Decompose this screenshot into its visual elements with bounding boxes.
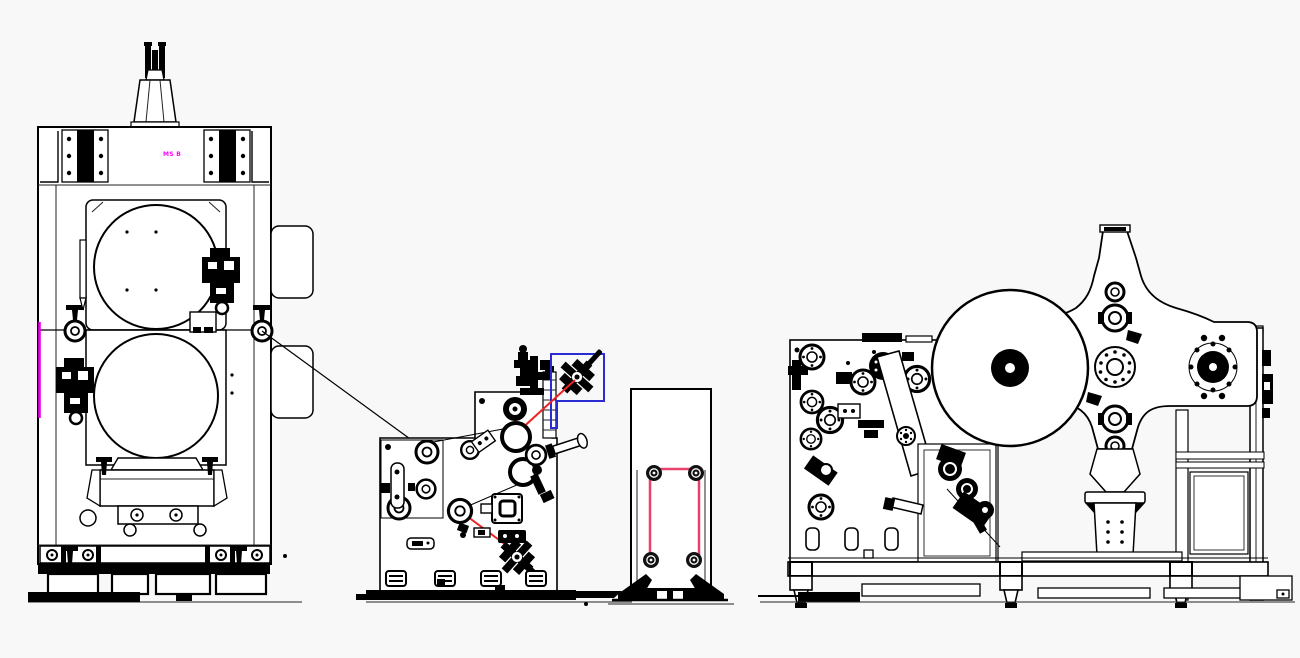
dark-roller xyxy=(503,397,527,421)
stand-roller-tr xyxy=(688,465,704,481)
side-box-lower xyxy=(271,346,313,418)
guide-roller-a xyxy=(416,441,438,463)
edge-mark xyxy=(38,322,41,418)
winder-roller-1 xyxy=(800,345,824,369)
guide-roller-b xyxy=(417,480,436,499)
mount-pad xyxy=(526,571,546,586)
press-machine: MS B xyxy=(28,42,313,602)
side-box-upper xyxy=(271,226,313,298)
stand-roller-bl xyxy=(643,552,659,568)
winder-roller-2 xyxy=(801,391,823,413)
winder-roller-5 xyxy=(809,495,833,519)
press-base xyxy=(28,546,287,602)
press-label: MS B xyxy=(163,151,181,158)
cad-line-drawing: MS B xyxy=(0,0,1300,658)
winder-roller-4 xyxy=(801,429,821,449)
mount-pad xyxy=(386,571,406,586)
drawing-canvas: MS B xyxy=(0,0,1300,658)
index-gear xyxy=(1095,347,1135,387)
mount-pad xyxy=(481,571,501,586)
level-gauge xyxy=(80,240,86,310)
guide-roller-f xyxy=(526,445,546,465)
coating-roller-1 xyxy=(502,423,530,451)
guide-roller-d xyxy=(448,499,471,522)
stand-roller-tl xyxy=(646,465,662,481)
lower-roll xyxy=(94,334,218,458)
jumbo-roll xyxy=(932,290,1088,446)
upper-roll xyxy=(94,205,218,329)
stand-roller-br xyxy=(686,552,702,568)
